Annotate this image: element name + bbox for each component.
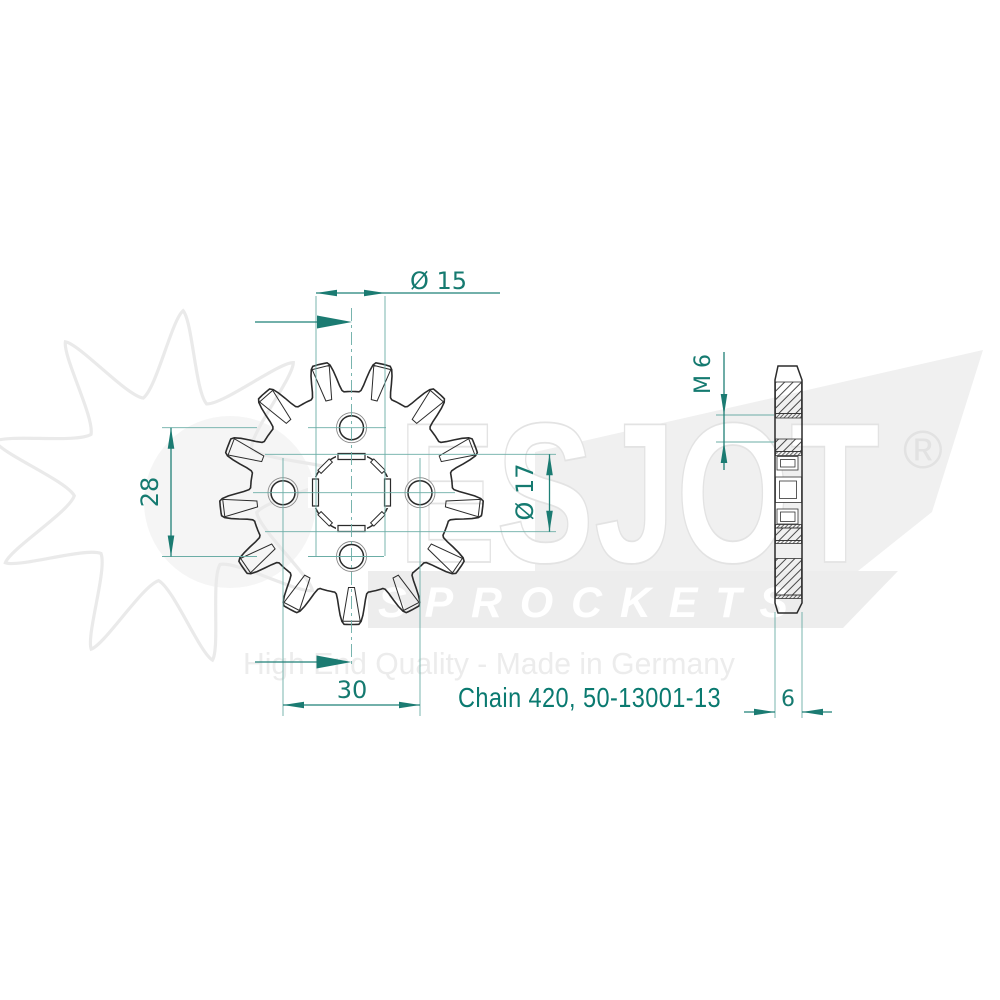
dim-text-6: 6 [781, 687, 795, 712]
sprocket-drawing-canvas: ESJOT ® SPROCKETS High End Quality - Mad… [0, 0, 1000, 1000]
side-view-sections [776, 382, 802, 599]
dimension-arrow [802, 709, 823, 716]
watermark-band-text: SPROCKETS [378, 579, 788, 627]
dim-text-phi15: Ø 15 [410, 267, 467, 295]
dim-text-30: 30 [337, 676, 368, 704]
technical-drawing-page: ESJOT ® SPROCKETS High End Quality - Mad… [0, 0, 1000, 1000]
dimension-arrow [364, 290, 385, 297]
dimension-arrow [317, 316, 352, 329]
dimension-arrow [283, 702, 304, 709]
sprocket-side-view [775, 366, 802, 613]
part-number-label: Chain 420, 50-13001-13 [458, 682, 721, 713]
dim-text-28: 28 [136, 477, 164, 508]
registered-trademark-icon: ® [903, 420, 943, 480]
dimension-arrow [754, 709, 775, 716]
dimension-arrow [399, 702, 420, 709]
dim-text-m6: M 6 [691, 354, 716, 394]
dim-text-phi17: Ø 17 [511, 463, 539, 520]
dimension-arrow [316, 290, 337, 297]
